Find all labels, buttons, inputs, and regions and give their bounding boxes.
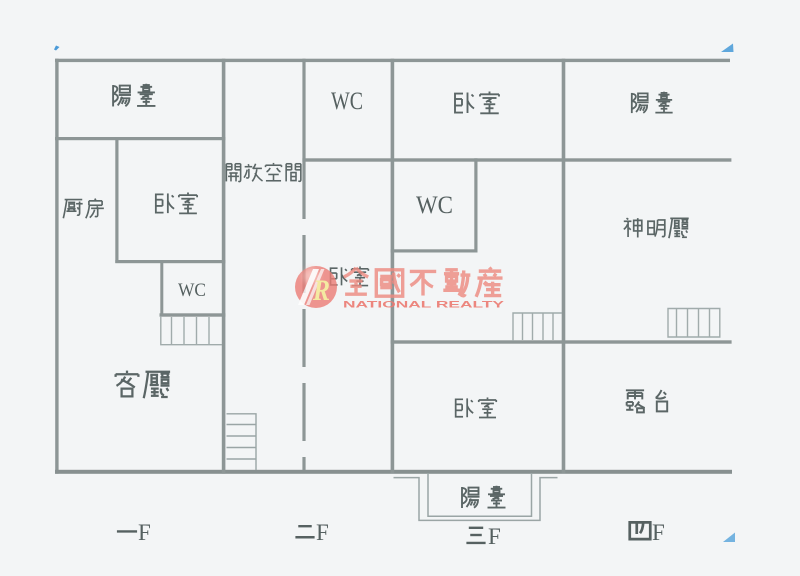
svg-text:F: F [138,520,151,545]
svg-text:WC: WC [416,192,453,219]
svg-text:F: F [316,520,329,545]
svg-text:WC: WC [331,88,363,115]
svg-text:R: R [312,274,330,307]
svg-text:NATIONAL REALTY: NATIONAL REALTY [343,300,505,311]
svg-text:WC: WC [178,280,206,301]
svg-text:F: F [488,524,501,549]
svg-text:F: F [652,520,665,545]
